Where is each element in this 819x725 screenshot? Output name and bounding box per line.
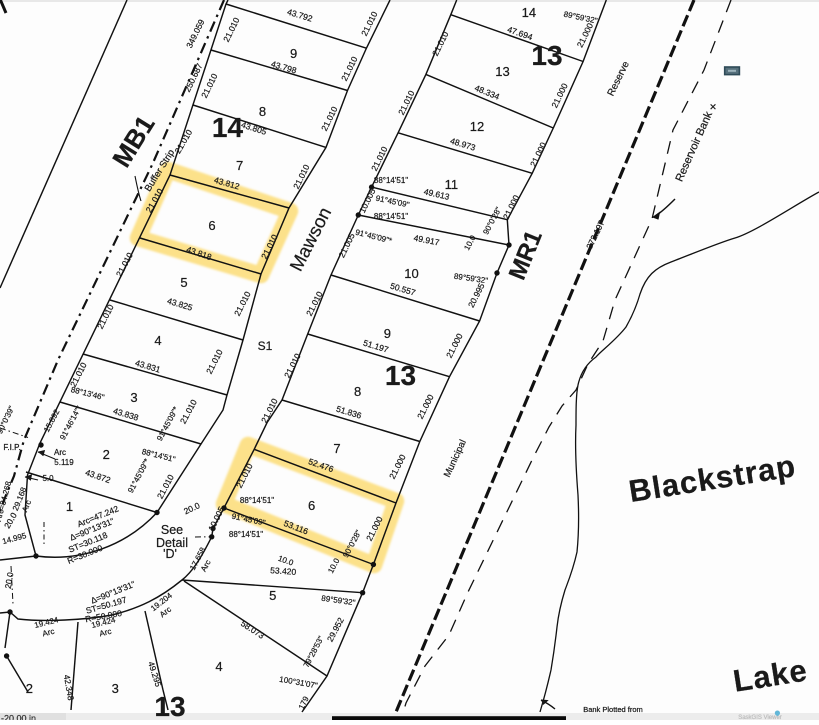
svg-text:13: 13 (154, 691, 185, 720)
svg-text:S1: S1 (258, 339, 273, 353)
svg-text:13: 13 (495, 64, 509, 79)
svg-text:7: 7 (333, 441, 340, 456)
svg-text:14: 14 (212, 112, 244, 143)
svg-text:1: 1 (66, 499, 73, 514)
svg-text:F.I.P.: F.I.P. (3, 443, 20, 452)
svg-text:9: 9 (384, 326, 391, 341)
svg-text:4: 4 (154, 333, 161, 348)
svg-text:53.420: 53.420 (270, 565, 297, 577)
svg-text:11: 11 (445, 177, 459, 192)
svg-text:3: 3 (130, 390, 137, 405)
svg-text:9: 9 (290, 46, 297, 61)
svg-text:7: 7 (236, 158, 243, 173)
svg-text:2: 2 (103, 447, 110, 462)
svg-text:SaskGIS Viewer: SaskGIS Viewer (738, 715, 782, 720)
svg-text:5: 5 (269, 588, 276, 603)
svg-text:8: 8 (354, 384, 361, 399)
svg-text:88°14'51": 88°14'51" (374, 176, 408, 185)
svg-text:5.119: 5.119 (54, 458, 74, 467)
svg-text:-20.00 in: -20.00 in (1, 714, 36, 721)
svg-text:✕: ✕ (709, 102, 717, 112)
svg-text:5: 5 (180, 275, 187, 290)
svg-text:See: See (161, 523, 183, 537)
svg-text:14: 14 (522, 5, 536, 20)
svg-text:10: 10 (404, 266, 418, 281)
svg-text:13: 13 (531, 40, 562, 71)
svg-text:Bank Plotted from: Bank Plotted from (583, 705, 643, 714)
svg-text:3: 3 (112, 681, 119, 696)
svg-text:'D': 'D' (163, 547, 177, 561)
svg-text:8: 8 (259, 104, 266, 119)
svg-text:12: 12 (470, 119, 484, 134)
svg-text:5.0: 5.0 (42, 474, 54, 483)
svg-text:4: 4 (215, 659, 222, 674)
svg-text:2: 2 (26, 681, 33, 696)
svg-text:88°14'51": 88°14'51" (240, 496, 274, 505)
svg-text:88°14'51": 88°14'51" (374, 212, 408, 221)
svg-text:13: 13 (385, 360, 416, 391)
svg-text:88°14'51": 88°14'51" (229, 530, 263, 539)
svg-text:6: 6 (308, 498, 315, 513)
svg-text:Arc: Arc (54, 448, 66, 457)
svg-text:6: 6 (208, 218, 215, 233)
